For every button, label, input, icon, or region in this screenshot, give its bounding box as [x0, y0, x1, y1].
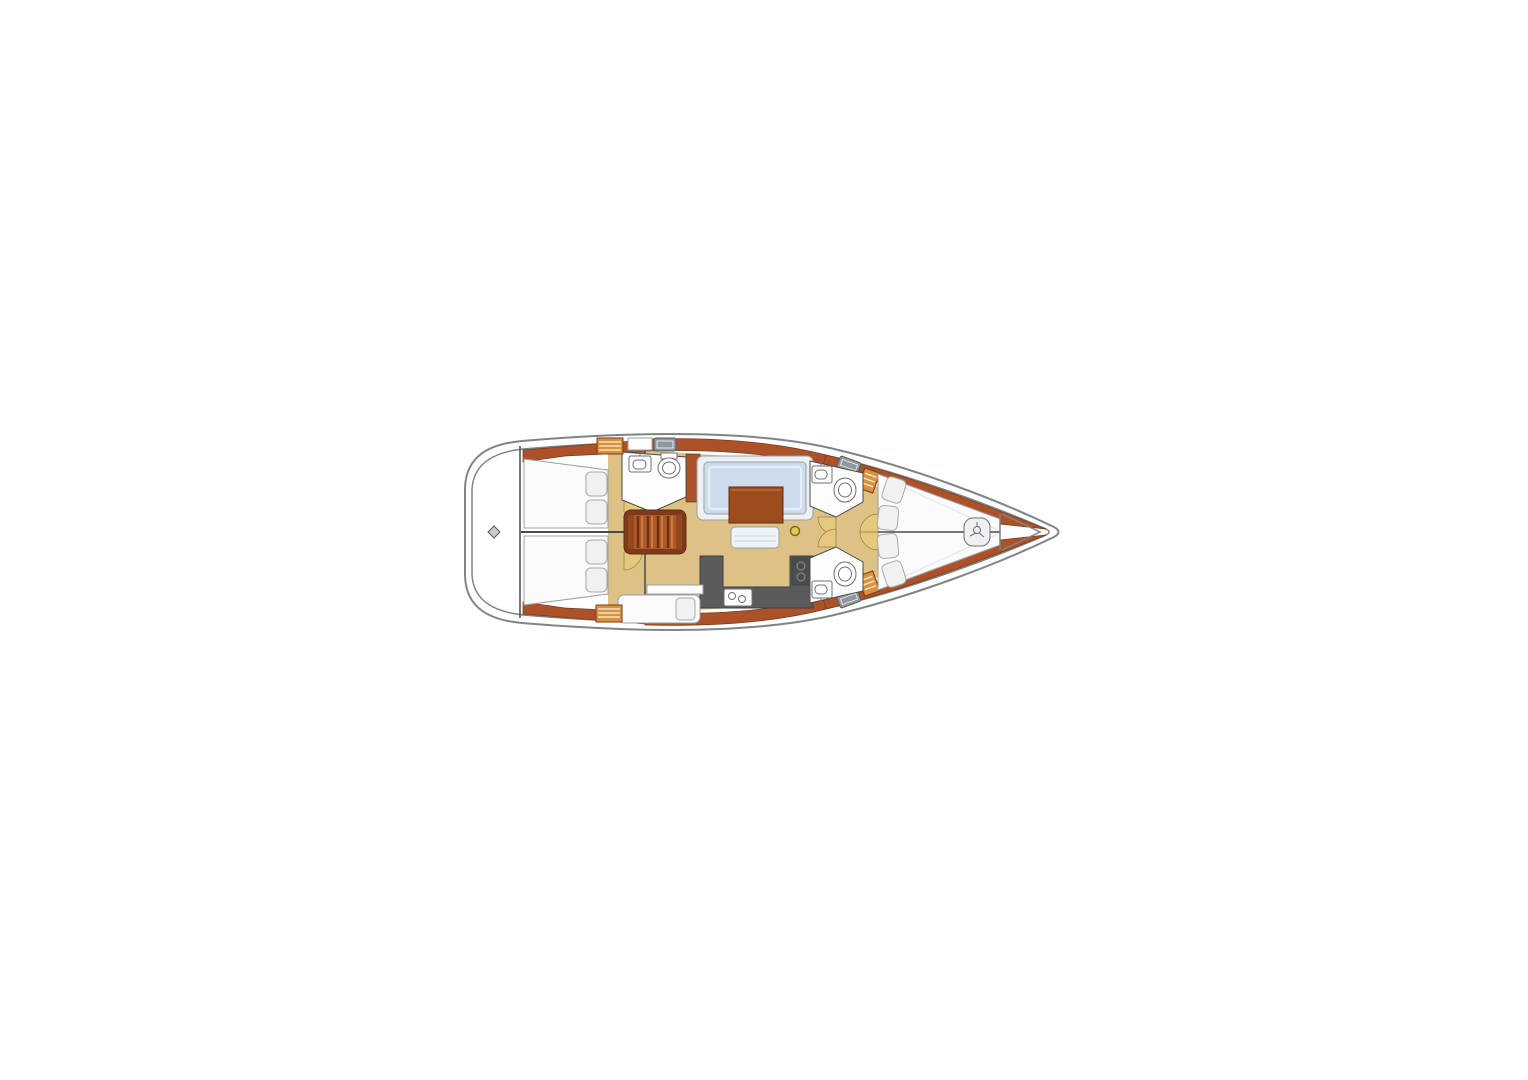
pillow: [586, 500, 607, 524]
pillow: [586, 540, 607, 564]
toilet-icon: [834, 478, 856, 502]
nav-shelf: [647, 585, 703, 594]
white-locker-aft: [628, 438, 652, 450]
salon-table: [729, 487, 783, 523]
steps-treads: [628, 515, 682, 549]
toilet-icon: [834, 562, 856, 586]
pillow: [877, 533, 899, 559]
striped-locker-aft-bottom: [596, 605, 622, 622]
companionway-steps: [624, 510, 686, 554]
nav-seat-pillow: [676, 598, 695, 620]
striped-locker-aft-top: [597, 438, 623, 454]
toilet-icon: [658, 453, 680, 478]
mast-post-icon: [791, 527, 800, 536]
windlass-icon: [964, 518, 990, 546]
salon-bench: [731, 527, 779, 548]
pillow: [877, 505, 899, 531]
deck-hatch-aft-icon: [654, 438, 676, 451]
steps-cap-right: [676, 515, 682, 549]
boat-plan: [0, 0, 1528, 1080]
pillow: [586, 568, 607, 592]
pillow: [586, 472, 607, 496]
page: [0, 0, 1528, 1080]
galley-sink: [724, 589, 752, 606]
steps-cap-left: [628, 515, 634, 549]
